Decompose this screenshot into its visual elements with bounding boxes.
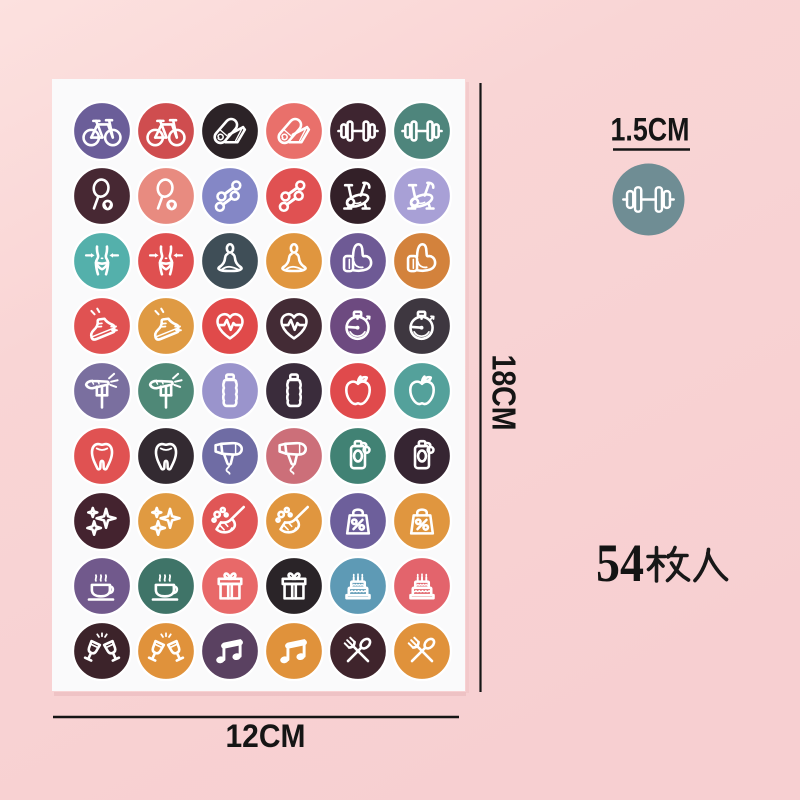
svg-text:18CM: 18CM [485, 355, 522, 431]
svg-text:54: 54 [596, 533, 644, 593]
svg-text:12CM: 12CM [226, 718, 306, 754]
svg-text:1.5CM: 1.5CM [611, 112, 690, 148]
